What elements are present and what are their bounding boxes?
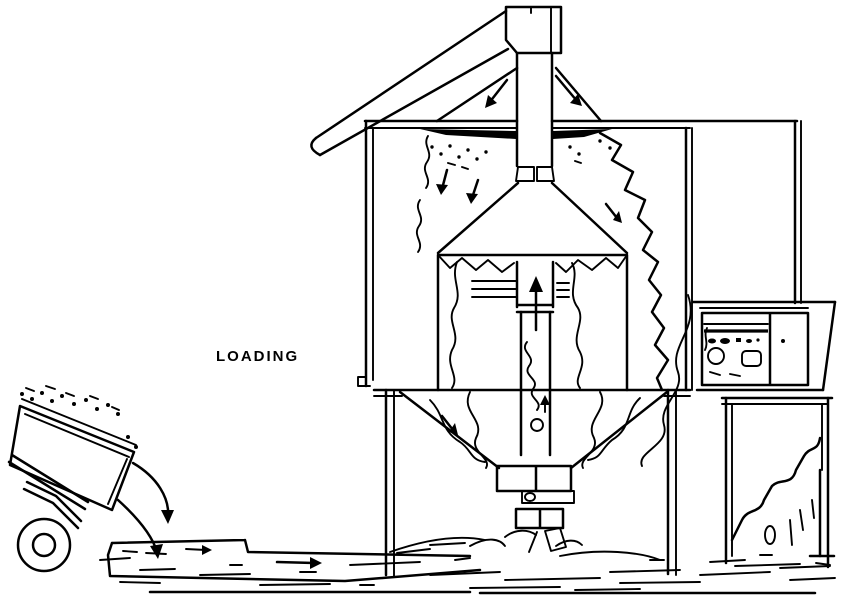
fill-spout: [506, 7, 561, 181]
grain-pile: [732, 438, 820, 540]
grain-squiggle: [417, 200, 421, 252]
loading-label: LOADING: [216, 348, 299, 365]
control-knob: [708, 348, 724, 364]
truck-wheel: [18, 519, 70, 571]
cone-right: [571, 392, 667, 468]
unload-auger: [516, 509, 563, 528]
spout-collar: [516, 167, 534, 181]
grain-squiggle: [425, 136, 429, 188]
falling-grain-dots: [430, 139, 611, 160]
drying-chamber: [438, 183, 627, 468]
grain-drying-diagram: LOADING: [0, 0, 847, 599]
chamber-box: [438, 255, 627, 390]
dump-arrow: [118, 500, 157, 552]
discharge-splash: [545, 528, 566, 551]
roof-under-edge: [437, 68, 517, 121]
truck-bed: [10, 406, 134, 510]
grain-storage-room: [722, 398, 834, 567]
control-switch: [742, 351, 761, 366]
panel-indicators: [708, 338, 785, 344]
building-shell: [358, 121, 801, 386]
ground-baseline: [150, 592, 815, 593]
auger-tube-bottom: [320, 49, 508, 155]
discharge-hopper: [400, 295, 691, 552]
louver-screen: [472, 281, 517, 297]
stirring-auger: [525, 342, 539, 410]
spreader-left-wing: [420, 129, 516, 139]
roof-right-edge: [556, 68, 601, 121]
receiving-pit: [108, 540, 480, 581]
control-panel-house: [693, 302, 835, 390]
auger-tube-top: [316, 11, 506, 138]
auger-tube-end: [311, 138, 320, 155]
house-right-edge: [823, 302, 835, 390]
left-wall-foot: [358, 377, 370, 386]
conveyor-arrow: [277, 562, 314, 563]
grain-bin: [374, 128, 692, 396]
discharge-box: [497, 466, 571, 491]
cone-left: [400, 392, 499, 468]
dump-arrow: [133, 463, 168, 518]
spout-cap: [506, 7, 561, 53]
diagram-canvas: [0, 0, 847, 599]
